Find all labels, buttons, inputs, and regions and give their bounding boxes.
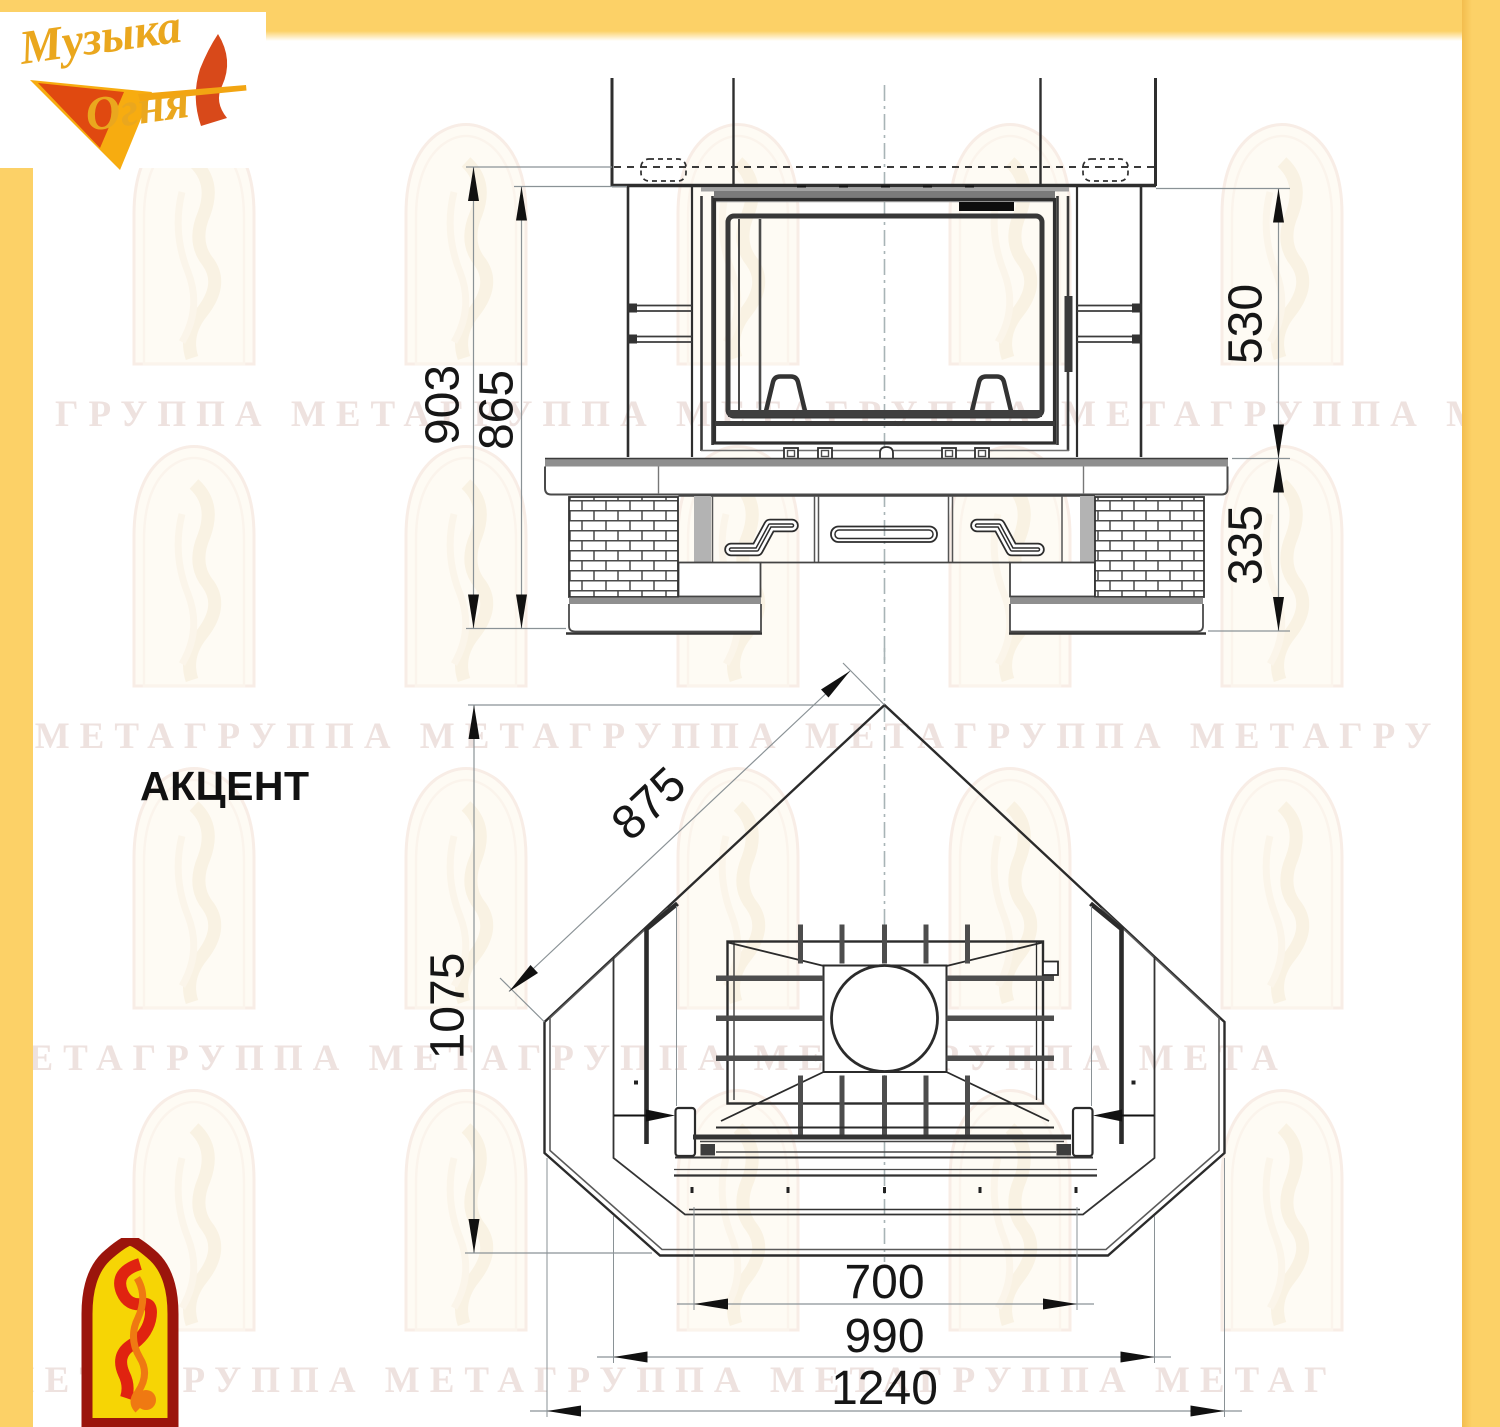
svg-text:903: 903: [417, 365, 470, 445]
svg-text:700: 700: [844, 1256, 924, 1309]
svg-text:1075: 1075: [422, 953, 475, 1060]
svg-text:335: 335: [1220, 505, 1273, 585]
svg-text:1240: 1240: [831, 1362, 938, 1415]
svg-text:990: 990: [844, 1310, 924, 1363]
svg-text:530: 530: [1220, 284, 1273, 364]
svg-text:875: 875: [602, 757, 697, 850]
svg-text:865: 865: [471, 370, 524, 450]
